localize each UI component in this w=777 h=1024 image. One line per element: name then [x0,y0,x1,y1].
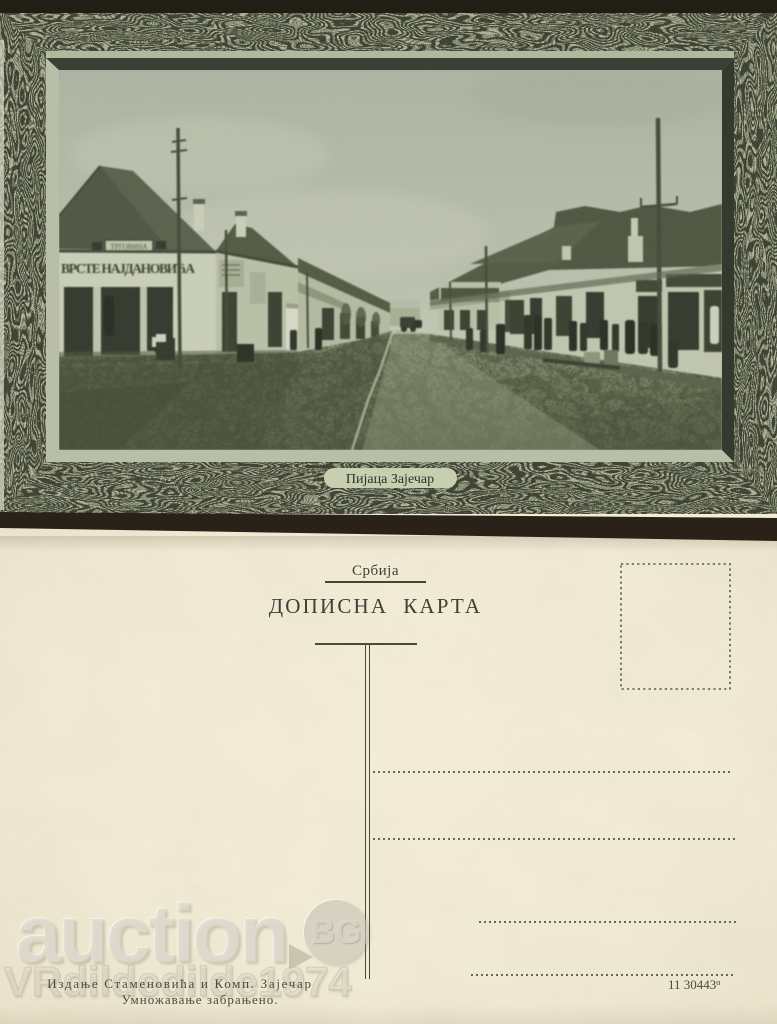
svg-text:Пијаца Зајечар: Пијаца Зајечар [346,472,434,487]
